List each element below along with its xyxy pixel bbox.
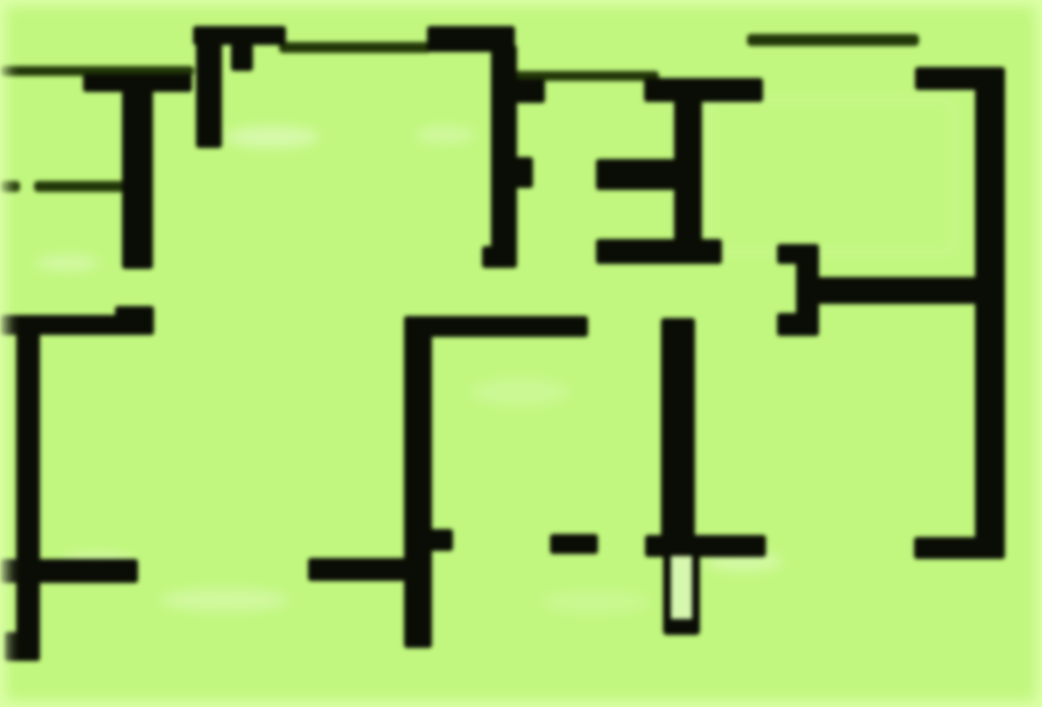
wall-segment <box>914 537 1005 559</box>
wall-segment <box>122 86 153 269</box>
wall-segment <box>661 318 695 552</box>
wall-segment <box>674 96 702 262</box>
wall-segment <box>596 159 676 190</box>
thin-wall-segment <box>279 42 431 53</box>
wall-segment <box>115 306 154 335</box>
wall-segment <box>550 534 598 554</box>
wall-segment <box>308 558 415 581</box>
wall-segment <box>777 244 802 264</box>
wall-segment <box>816 277 994 304</box>
wall-segment <box>482 246 517 268</box>
wall-segment <box>16 324 40 661</box>
floor-plan-canvas <box>0 0 1042 707</box>
wall-segment <box>428 529 453 551</box>
wall-segment <box>491 45 517 260</box>
wall-segment <box>777 313 805 336</box>
wall-segment <box>644 78 763 102</box>
wall-segment <box>404 316 588 337</box>
wall-segment <box>975 67 1005 559</box>
wall-segment <box>4 632 40 661</box>
wall-segment <box>513 157 533 188</box>
thin-wall-segment <box>0 181 20 192</box>
wall-segment <box>0 559 138 583</box>
wall-segment <box>513 79 545 103</box>
wall-layer <box>0 0 1042 707</box>
wall-segment <box>596 239 722 264</box>
wall-segment <box>231 44 253 71</box>
wall-segment <box>196 40 222 148</box>
door-column-feature <box>663 548 700 635</box>
wall-segment <box>404 316 432 648</box>
thin-wall-segment <box>747 34 919 46</box>
thin-wall-segment <box>34 181 128 192</box>
